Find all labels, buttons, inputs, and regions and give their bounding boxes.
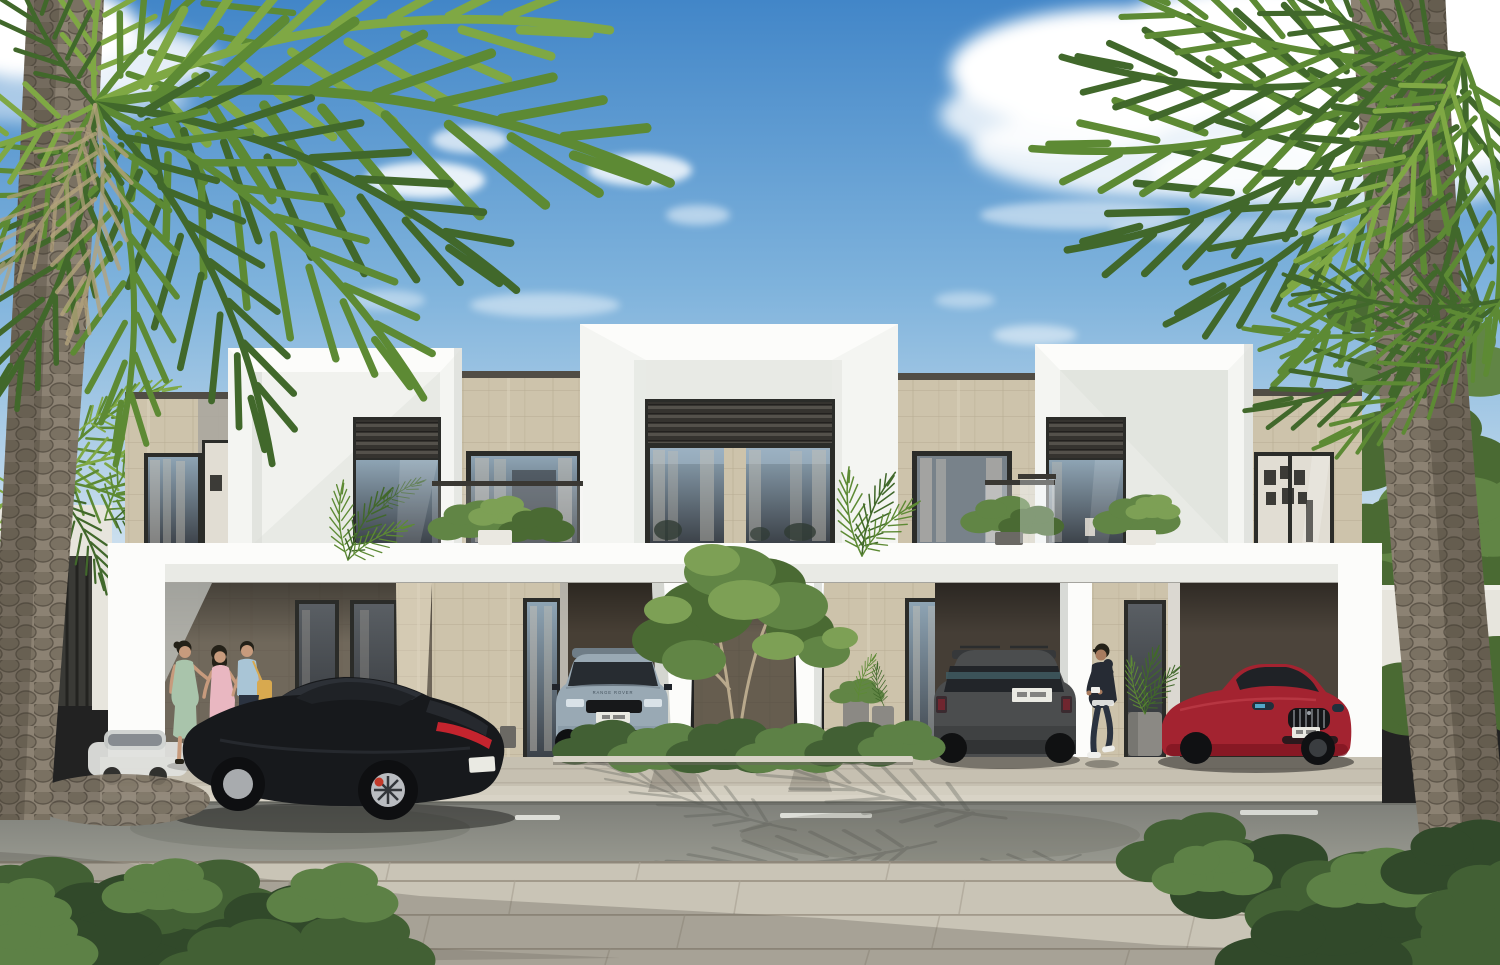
architectural-render: RANGE ROVER [0, 0, 1500, 965]
suv-hood-badge-text: RANGE ROVER [593, 690, 634, 695]
terrace-planter-pot [478, 530, 512, 545]
phone [1091, 687, 1100, 693]
white-portal-left [108, 543, 165, 762]
stone-mullion [724, 448, 746, 543]
white-frame-volume-centre [580, 324, 898, 547]
trident-badge [1307, 711, 1311, 715]
balustrade-rail [432, 481, 583, 486]
planter-edge [553, 756, 913, 762]
license-plate [469, 756, 496, 773]
window-upper-left-lit-interior [202, 440, 232, 547]
headlight [566, 699, 584, 707]
lane-dash [515, 815, 560, 820]
stone-section-far-right [1248, 389, 1362, 547]
windows-centre [645, 443, 835, 547]
shoulder-bag [257, 680, 272, 700]
picture-frame-art [210, 475, 222, 491]
window-gallery-interior [1254, 452, 1334, 547]
louver-band [356, 420, 438, 458]
grille [586, 700, 642, 713]
door-entry-left [523, 598, 561, 757]
window-upper-far-left [144, 453, 202, 547]
headlight [644, 699, 662, 707]
hedge-left-corner [0, 857, 435, 965]
stone-section-far-left [125, 392, 232, 547]
brake-caliper [375, 778, 384, 787]
windshield [568, 662, 658, 686]
render-stage: RANGE ROVER [0, 0, 1500, 965]
louver-band-centre [645, 399, 835, 446]
lane-dash [1240, 810, 1318, 815]
